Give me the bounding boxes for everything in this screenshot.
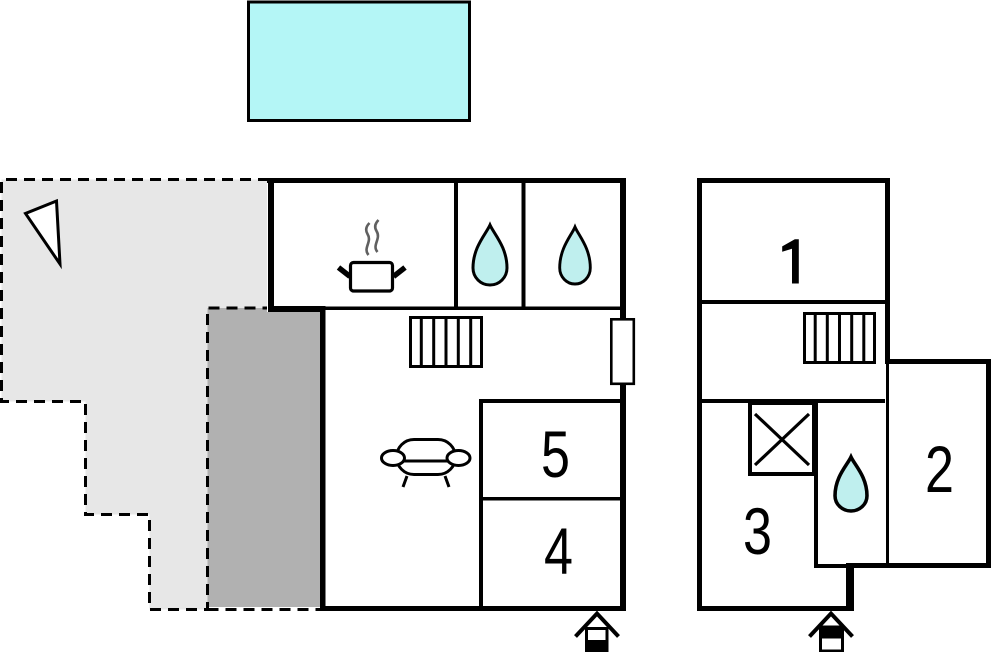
svg-text:2: 2	[925, 432, 954, 506]
svg-text:3: 3	[743, 494, 772, 568]
svg-text:5: 5	[541, 417, 570, 491]
svg-text:4: 4	[544, 514, 573, 588]
